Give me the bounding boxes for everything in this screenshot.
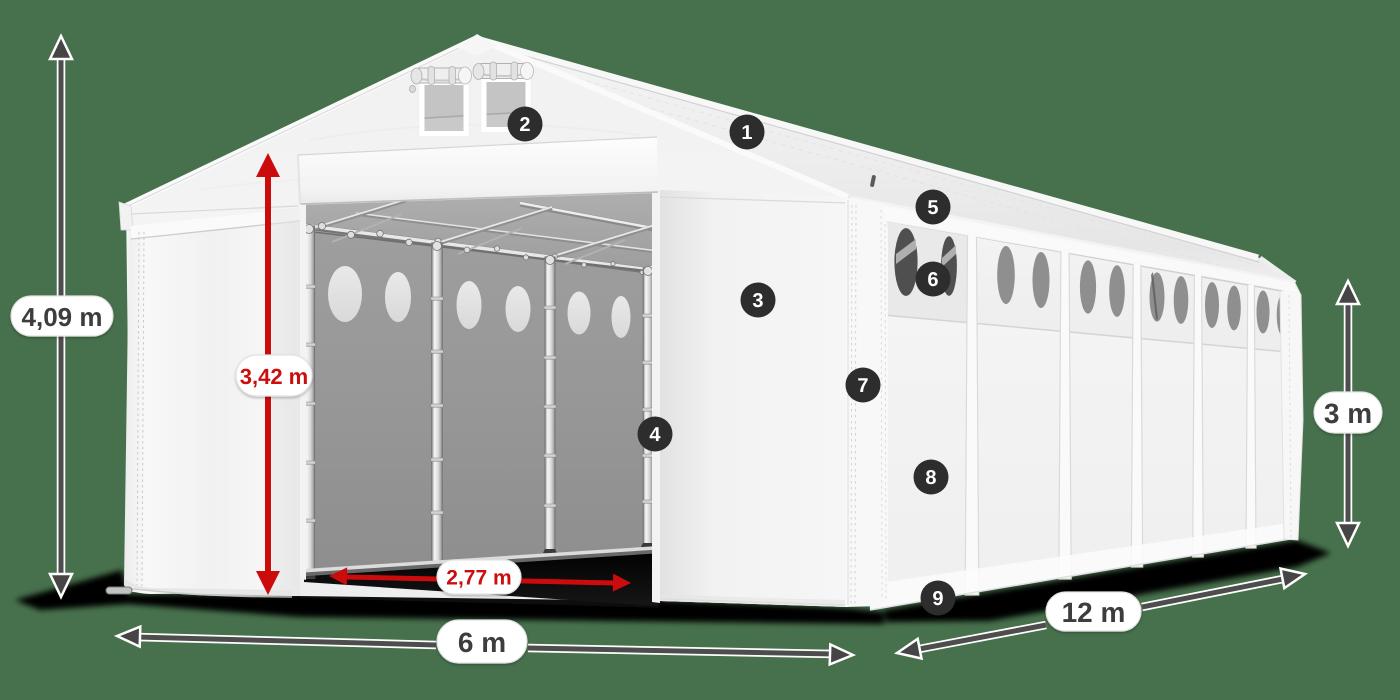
svg-text:3: 3 [752, 290, 763, 312]
svg-text:2,77 m: 2,77 m [446, 566, 511, 589]
svg-text:6: 6 [927, 269, 938, 291]
svg-text:4: 4 [649, 424, 661, 446]
svg-text:3 m: 3 m [1324, 398, 1372, 429]
svg-text:7: 7 [857, 375, 868, 397]
svg-text:12 m: 12 m [1062, 597, 1126, 628]
svg-text:3,42 m: 3,42 m [240, 364, 309, 389]
svg-text:9: 9 [932, 588, 943, 610]
svg-text:5: 5 [927, 197, 938, 219]
svg-text:8: 8 [925, 467, 936, 489]
svg-text:4,09 m: 4,09 m [22, 302, 103, 332]
svg-text:1: 1 [741, 122, 752, 144]
svg-text:2: 2 [519, 114, 530, 136]
svg-text:6 m: 6 m [458, 627, 506, 658]
